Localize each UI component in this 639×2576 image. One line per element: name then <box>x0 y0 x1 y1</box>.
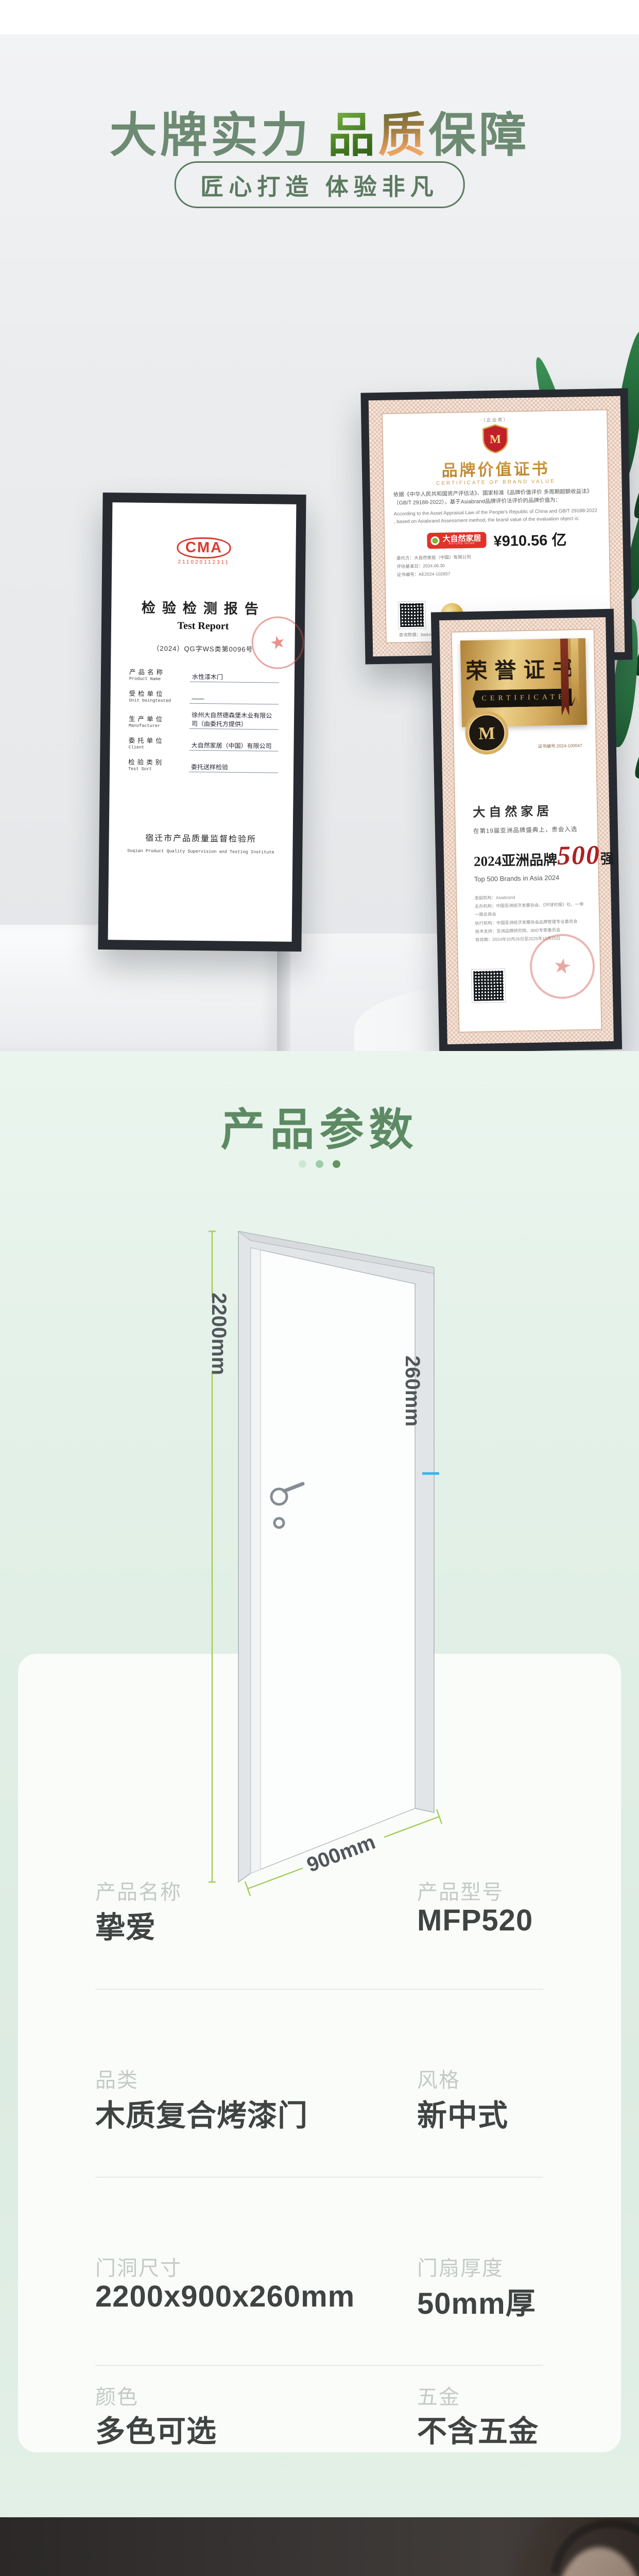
spec-label: 产品型号 <box>417 1875 504 1905</box>
hero-subtitle-pill: 匠心打造 体验非凡 <box>174 161 465 208</box>
spec-value: 挚爱 <box>95 1903 156 1946</box>
spec-label: 品类 <box>95 2063 139 2093</box>
spec-value: 多色可选 <box>95 2407 217 2450</box>
brand-cert-qr-code <box>399 601 426 629</box>
spec-label: 五金 <box>417 2380 460 2410</box>
test-report-field-row: 生产单位 Manufacturer 徐州大自然德森堡木业有限公司（由委托方提供） <box>129 710 279 730</box>
spec-value: MFP520 <box>417 1903 533 1938</box>
honor-ribbon: CERTIFICATE <box>473 688 576 708</box>
spec-value: 不含五金 <box>417 2407 539 2450</box>
hero-title: 大牌实力 品质保障 <box>0 97 639 165</box>
door-diagram: 2200mm 260mm 900mm <box>170 1220 469 1916</box>
field-label-en: Client <box>128 745 189 751</box>
spec-divider <box>95 2365 543 2366</box>
field-label-en: Product Name <box>129 676 190 682</box>
brand-cert-paper: ·（企业类）· M 品牌价值证书 CERTIFICATE OF BRAND VA… <box>382 409 612 643</box>
dim-height-label: 2200mm <box>208 1293 230 1375</box>
field-label: 产品名称 <box>129 667 190 677</box>
award-suffix: 强 <box>600 851 615 867</box>
field-value: 大自然家居（中国）有限公司 <box>189 741 278 752</box>
spec-value: 2200x900x260mm <box>95 2279 355 2314</box>
test-report-paper: CMA 211020112311 检验检测报告 Test Report （202… <box>108 502 297 942</box>
test-report-field-row: 委托单位 Client 大自然家居（中国）有限公司 <box>128 735 278 752</box>
spec-label: 门洞尺寸 <box>95 2251 182 2281</box>
field-label-en: Unit beingtested <box>129 698 189 704</box>
dim-depth-label: 260mm <box>401 1355 424 1427</box>
test-report-field-row: 检验类别 Test Sort 委托送样检验 <box>128 757 278 773</box>
nature-home-logo-en: NATURE HOME <box>443 543 481 546</box>
test-report-institute: 宿迁市产品质量监督检验所 <box>109 831 293 845</box>
honor-meta-line: 主办机构：中国亚洲经济发展协会、《环球时报》社、一带一路总商会 <box>475 900 586 919</box>
nature-home-logo: 大自然家居 NATURE HOME <box>427 532 487 549</box>
test-report-title: 检验检测报告 <box>111 596 295 618</box>
field-label: 受检单位 <box>129 688 189 699</box>
spec-divider <box>95 2177 543 2178</box>
brand-cert-paragraph-en: According to the Asset Appraisal Law of … <box>393 507 599 526</box>
hero-title-em-orange: 质 <box>378 109 428 162</box>
test-report-field-row: 产品名称 Product Name 水性漆木门 <box>129 667 279 683</box>
brand-cert-paragraph-cn: 依据《中华人民共和国资产评估法》、国家标准《品牌价值评价 多周期超额收益法》（G… <box>393 487 599 507</box>
ribbon-stripe-icon <box>560 638 569 716</box>
params-section-title: 产品参数 <box>0 1093 639 1158</box>
brand-emblem-icon: M <box>481 424 509 457</box>
field-value: —— <box>189 695 279 705</box>
stamp-star: ★ <box>268 631 288 655</box>
hero-title-prefix: 大牌实力 <box>110 109 328 162</box>
service-section <box>0 2517 639 2576</box>
brand-cert-category: ·（企业类）· <box>383 414 607 425</box>
spec-label: 颜色 <box>95 2380 139 2410</box>
test-report-certificate: CMA 211020112311 检验检测报告 Test Report （202… <box>98 493 306 952</box>
spec-divider <box>95 1989 543 1990</box>
brand-emblem-letter: M <box>489 433 501 446</box>
spec-label: 产品名称 <box>95 1875 182 1905</box>
honor-medallion-icon: M <box>462 709 511 757</box>
honor-brand: 大自然家居 <box>473 801 553 820</box>
spec-label: 风格 <box>417 2063 460 2093</box>
field-value: 徐州大自然德森堡木业有限公司（由委托方提供） <box>189 710 279 730</box>
door-leaf <box>251 1248 415 1873</box>
honor-award-en: Top 500 Brands in Asia 2024 <box>474 874 560 883</box>
spec-value: 50mm厚 <box>417 2279 536 2323</box>
brand-value-amount: ¥910.56 亿 <box>493 528 567 550</box>
title-dots <box>0 1160 639 1168</box>
nature-home-logo-icon <box>430 536 439 545</box>
field-value: 水性漆木门 <box>190 672 279 683</box>
field-label: 检验类别 <box>128 757 189 767</box>
field-value: 委托送样检验 <box>189 762 278 773</box>
honor-qr-code <box>472 969 505 1003</box>
cma-number: 211020112311 <box>112 558 296 566</box>
brand-cert-title: 品牌价值证书 <box>384 454 608 482</box>
spec-value: 木质复合烤漆门 <box>95 2091 308 2134</box>
field-label: 委托单位 <box>129 735 189 745</box>
honor-cert-number: 证书编号:2024-100047 <box>538 742 582 750</box>
hero-title-em-green: 品 <box>327 109 378 162</box>
ribbon-stripe-icon <box>571 638 579 704</box>
door-hinge-edge <box>251 1248 261 1873</box>
award-prefix: 2024亚洲品牌 <box>474 852 558 869</box>
top-white-strip <box>0 0 639 35</box>
honor-award-line: 2024亚洲品牌500强 <box>473 840 614 873</box>
cma-logo: CMA <box>177 537 231 558</box>
field-label-en: Manufacturer <box>129 723 189 729</box>
award-number: 500 <box>557 840 600 871</box>
hero-title-suffix: 保障 <box>428 109 529 162</box>
honor-line1: 在第19届亚洲品牌盛典上，贵会入选 <box>473 825 578 835</box>
honor-certificate: 荣誉证书 CERTIFICATE M 证书编号:2024-100047 大自然家… <box>431 609 622 1053</box>
honor-cert-paper: 荣誉证书 CERTIFICATE M 证书编号:2024-100047 大自然家… <box>451 629 602 1032</box>
test-report-institute-en: Suqian Product Quality Supervision and T… <box>109 848 292 855</box>
spec-label: 门扇厚度 <box>417 2251 504 2281</box>
spec-value: 新中式 <box>417 2091 508 2134</box>
field-label: 生产单位 <box>129 714 189 724</box>
test-report-field-row: 受检单位 Unit beingtested —— <box>129 688 279 705</box>
field-label-en: Test Sort <box>128 767 189 772</box>
page: 大牌实力 品质保障 匠心打造 体验非凡 ·（企业类）· M 品牌价值证书 CER… <box>0 0 639 2576</box>
stamp-star: ★ <box>551 953 574 979</box>
medallion-letter: M <box>478 724 495 743</box>
